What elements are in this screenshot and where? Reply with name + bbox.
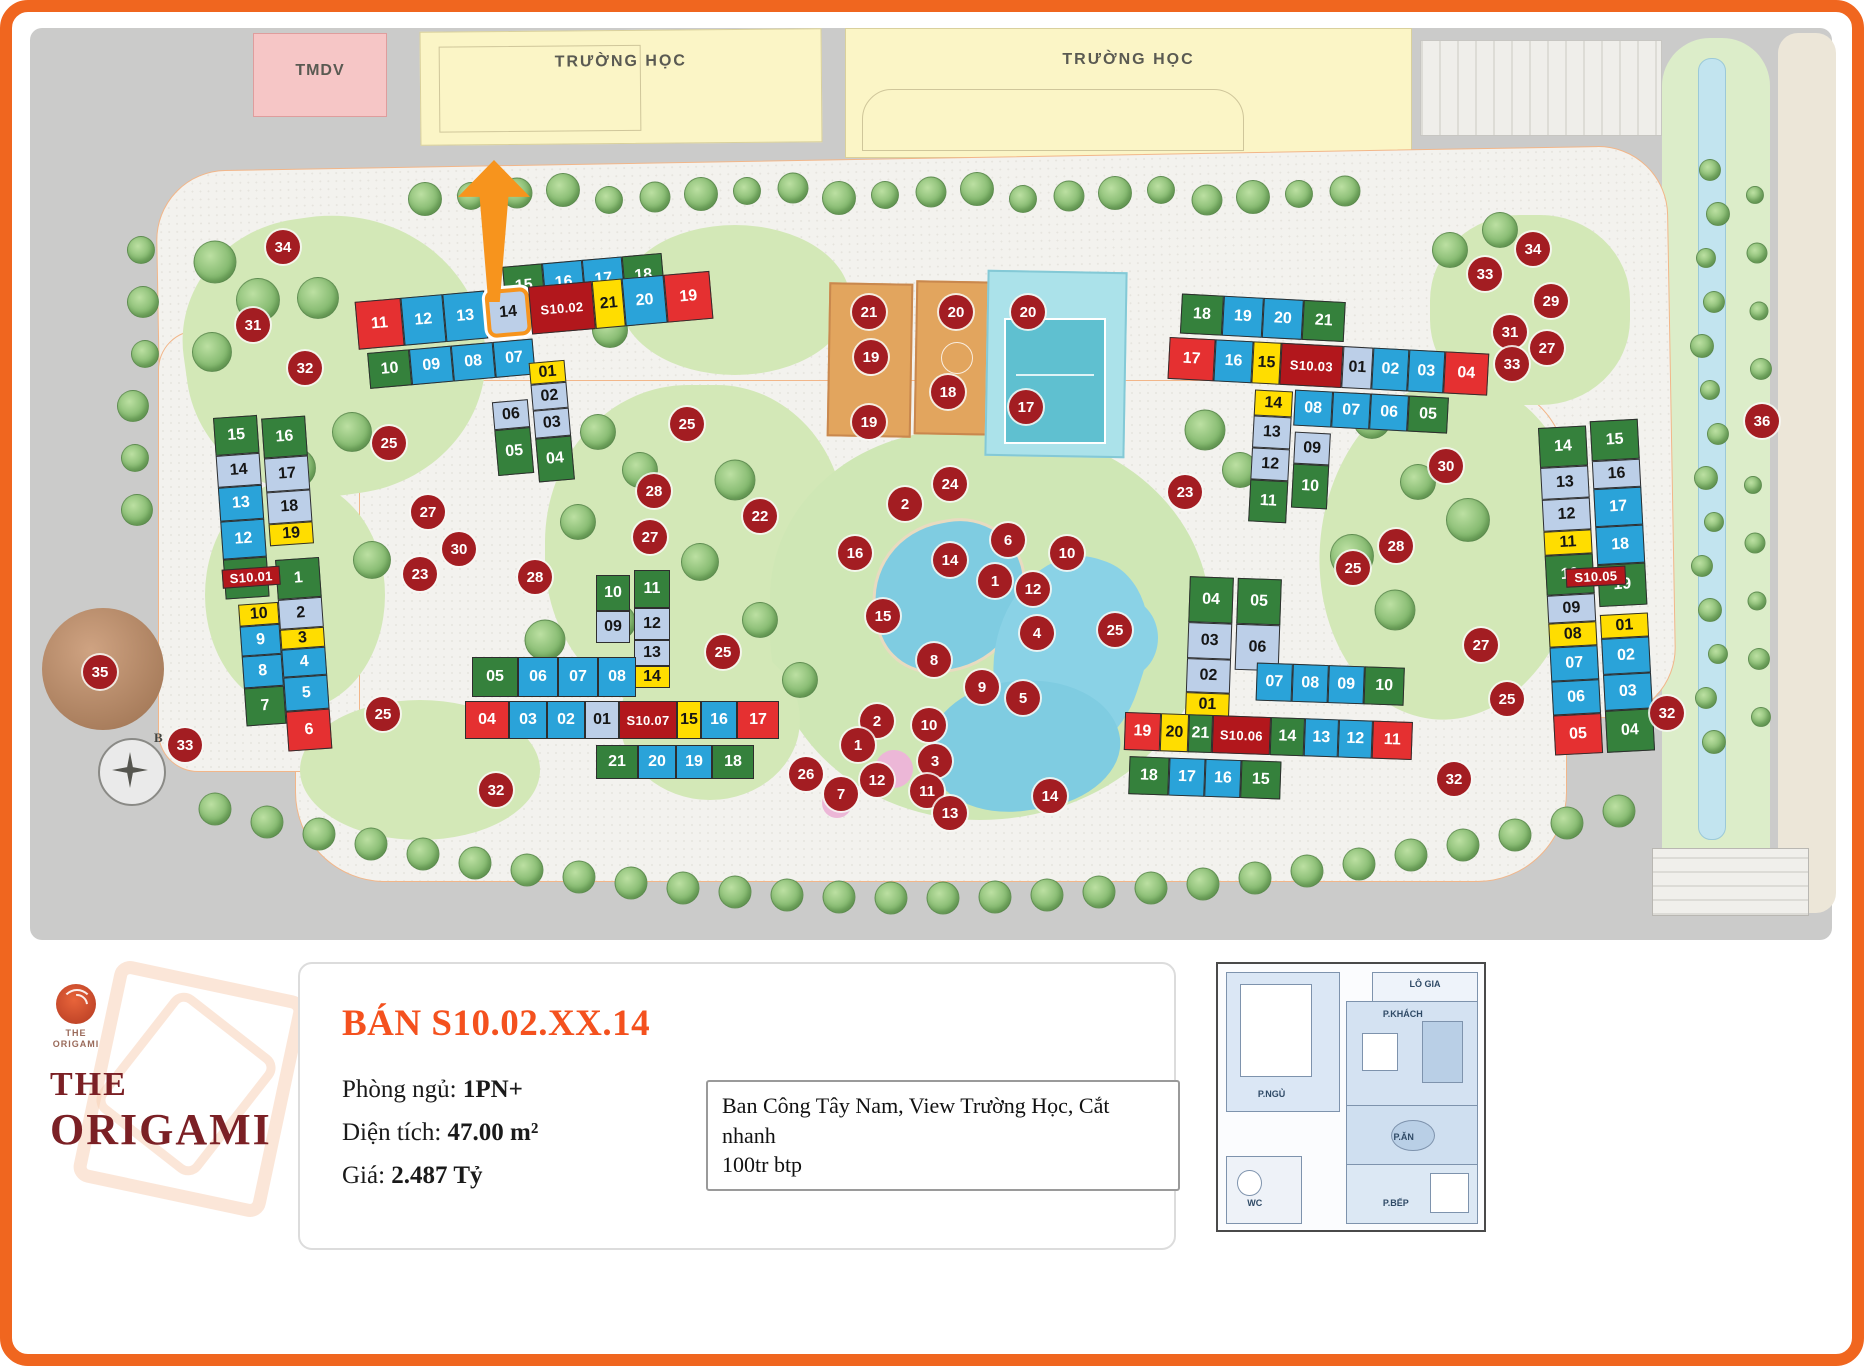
unit-S10.02-05[interactable]: 05: [494, 427, 534, 476]
tree-icon: [1703, 291, 1725, 313]
amenity-marker-26: 26: [789, 757, 823, 791]
note-line-1: Ban Công Tây Nam, View Trường Học, Cắt n…: [722, 1091, 1164, 1150]
amenity-marker-4: 4: [1020, 616, 1054, 650]
unit-S10.07-17[interactable]: 17: [737, 701, 779, 739]
amenity-marker-33: 33: [168, 728, 202, 762]
info-field-0: Phòng ngủ: 1PN+: [342, 1076, 538, 1104]
tree-icon: [332, 412, 372, 452]
amenity-marker-25: 25: [366, 697, 400, 731]
unit-S10.07-04[interactable]: 04: [465, 701, 509, 739]
unit-S10.03-20[interactable]: 20: [1262, 298, 1304, 340]
tree-icon: [1098, 176, 1132, 210]
amenity-marker-33: 33: [1495, 347, 1529, 381]
block-group: 04030201: [1185, 576, 1234, 717]
tree-icon: [1135, 872, 1168, 905]
amenity-marker-30: 30: [1429, 449, 1463, 483]
tree-icon: [960, 172, 994, 206]
tree-icon: [1285, 180, 1313, 208]
tree-icon: [1707, 423, 1729, 445]
tree-icon: [927, 881, 960, 914]
tree-icon: [715, 460, 756, 501]
tree-icon: [1330, 176, 1361, 207]
tree-icon: [782, 662, 818, 698]
tree-icon: [131, 340, 159, 368]
unit-S10.05-03[interactable]: 03: [1603, 672, 1653, 710]
unit-S10.06-03[interactable]: 03: [1187, 622, 1232, 660]
tree-icon: [733, 177, 761, 205]
unit-S10.03-17[interactable]: 17: [1167, 337, 1215, 381]
amenity-marker-6: 6: [991, 523, 1025, 557]
unit-S10.07-21[interactable]: 21: [596, 745, 638, 779]
block-name-label-S10.06: S10.06: [1212, 715, 1271, 755]
brand-logo: THE ORIGAMI THE ORIGAMI: [40, 970, 290, 1270]
block-name-label-S10.07: S10.07: [619, 701, 677, 739]
unit-S10.06-12[interactable]: 12: [1338, 719, 1373, 758]
unit-S10.06-18[interactable]: 18: [1128, 756, 1169, 795]
amenity-marker-32: 32: [479, 773, 513, 807]
amenity-marker-3: 3: [918, 744, 952, 778]
amenity-marker-25: 25: [670, 407, 704, 441]
unit-S10.03-01[interactable]: 01: [1341, 346, 1373, 390]
room-label-kitchen: P.BẾP: [1383, 1198, 1409, 1208]
listing-note: Ban Công Tây Nam, View Trường Học, Cắt n…: [706, 1080, 1180, 1191]
unit-S10.07-19[interactable]: 19: [676, 745, 712, 779]
amenity-marker-18: 18: [931, 375, 965, 409]
tree-icon: [595, 186, 623, 214]
unit-S10.07-01[interactable]: 01: [585, 701, 619, 739]
unit-S10.06-14[interactable]: 14: [1270, 717, 1305, 756]
unit-S10.07-20[interactable]: 20: [638, 745, 676, 779]
amenity-marker-24: 24: [933, 467, 967, 501]
unit-S10.05-18[interactable]: 18: [1595, 525, 1645, 565]
unit-S10.01-4[interactable]: 4: [281, 647, 327, 678]
tree-icon: [719, 875, 752, 908]
block-group: 0506: [1235, 578, 1282, 671]
tree-icon: [1239, 861, 1272, 894]
tree-icon: [1031, 879, 1064, 912]
tennis-court: [1004, 318, 1106, 444]
unit-S10.03-15[interactable]: 15: [1251, 341, 1281, 384]
note-line-2: 100tr btp: [722, 1150, 1164, 1180]
service-building-plan: [1652, 848, 1809, 916]
tree-icon: [1750, 358, 1772, 380]
amenity-marker-13: 13: [933, 796, 967, 830]
unit-S10.05-08[interactable]: 08: [1548, 621, 1597, 647]
amenity-marker-15: 15: [866, 599, 900, 633]
amenity-marker-7: 7: [824, 777, 858, 811]
amenity-marker-14: 14: [933, 543, 967, 577]
amenity-marker-34: 34: [1516, 232, 1550, 266]
unit-S10.05-06[interactable]: 06: [1551, 679, 1601, 715]
school-label-2: TRƯỜNG HỌC: [846, 51, 1411, 69]
unit-S10.01-18[interactable]: 18: [266, 489, 312, 524]
tree-icon: [823, 880, 856, 913]
amenity-marker-1: 1: [978, 564, 1012, 598]
amenity-marker-27: 27: [1464, 628, 1498, 662]
amenity-marker-36: 36: [1745, 404, 1779, 438]
tree-icon: [667, 871, 700, 904]
amenity-marker-28: 28: [1379, 529, 1413, 563]
tree-icon: [192, 332, 232, 372]
unit-S10.05-16[interactable]: 16: [1592, 459, 1641, 489]
unit-S10.03-12[interactable]: 12: [1250, 447, 1290, 481]
amenity-marker-28: 28: [637, 474, 671, 508]
unit-S10.07-12[interactable]: 12: [634, 608, 670, 640]
tree-icon: [1700, 380, 1720, 400]
tree-icon: [1750, 302, 1769, 321]
block-group: 1009: [596, 575, 630, 643]
unit-S10.02-11[interactable]: 11: [355, 298, 405, 350]
unit-S10.03-11[interactable]: 11: [1248, 479, 1288, 523]
amenity-marker-27: 27: [411, 495, 445, 529]
tree-icon: [355, 828, 388, 861]
unit-S10.03-09[interactable]: 09: [1293, 432, 1331, 466]
unit-S10.07-03[interactable]: 03: [509, 701, 547, 739]
amenity-marker-14: 14: [1033, 779, 1067, 813]
tree-icon: [1603, 794, 1636, 827]
unit-S10.03-02[interactable]: 02: [1371, 348, 1409, 392]
tree-icon: [511, 854, 544, 887]
amenity-marker-28: 28: [518, 560, 552, 594]
block-name-label-S10.01: S10.01: [222, 566, 281, 589]
tree-icon: [353, 541, 391, 579]
compass-rose: [98, 738, 166, 806]
tree-icon: [1690, 334, 1714, 358]
unit-S10.06-09[interactable]: 09: [1328, 665, 1365, 704]
tree-icon: [1748, 592, 1767, 611]
unit-S10.01-9[interactable]: 9: [240, 624, 282, 657]
unit-S10.01-19[interactable]: 19: [269, 521, 314, 546]
amenity-marker-30: 30: [442, 532, 476, 566]
tree-icon: [1083, 876, 1116, 909]
unit-S10.06-10[interactable]: 10: [1364, 666, 1405, 705]
amenity-marker-27: 27: [1530, 331, 1564, 365]
brand-title-line2: ORIGAMI: [50, 1104, 272, 1155]
block-group: 18171615: [1128, 756, 1281, 799]
amenity-marker-8: 8: [917, 643, 951, 677]
unit-S10.02-12[interactable]: 12: [400, 294, 446, 345]
unit-S10.01-15[interactable]: 15: [213, 415, 260, 456]
room-label-balcony: LÔ GIA: [1410, 979, 1441, 989]
tree-icon: [871, 181, 899, 209]
unit-S10.03-19[interactable]: 19: [1222, 296, 1264, 338]
amenity-marker-35: 35: [83, 655, 117, 689]
tree-icon: [127, 236, 155, 264]
tree-icon: [1694, 466, 1718, 490]
unit-S10.06-17[interactable]: 17: [1168, 758, 1205, 797]
unit-S10.03-03[interactable]: 03: [1407, 350, 1445, 394]
amenity-marker-10: 10: [1050, 536, 1084, 570]
tree-icon: [742, 602, 778, 638]
unit-S10.07-11[interactable]: 11: [634, 570, 670, 608]
tree-icon: [1343, 847, 1376, 880]
unit-S10.03-10[interactable]: 10: [1291, 464, 1329, 510]
tree-icon: [121, 444, 149, 472]
block-name-label-S10.03: S10.03: [1279, 343, 1343, 388]
tree-icon: [1187, 867, 1220, 900]
listing-fields: Phòng ngủ: 1PN+Diện tích: 47.00 m²Giá: 2…: [342, 1076, 538, 1205]
amenity-marker-31: 31: [1493, 315, 1527, 349]
info-field-2: Giá: 2.487 Tỷ: [342, 1162, 538, 1190]
tree-icon: [251, 805, 284, 838]
unit-S10.07-16[interactable]: 16: [701, 701, 737, 739]
tree-icon: [525, 620, 566, 661]
tree-icon: [1551, 807, 1584, 840]
tree-icon: [1745, 533, 1766, 554]
amenity-marker-27: 27: [633, 520, 667, 554]
unit-S10.06-11[interactable]: 11: [1372, 721, 1413, 760]
block-group: 16171819: [261, 416, 314, 547]
brand-small-text: THE ORIGAMI: [44, 1028, 108, 1051]
tree-icon: [1699, 159, 1721, 181]
unit-S10.06-15[interactable]: 15: [1240, 760, 1281, 799]
unit-S10.06-07[interactable]: 07: [1256, 663, 1293, 702]
block-group: 01020304: [1600, 613, 1655, 753]
tree-icon: [580, 414, 616, 450]
unit-S10.01-5[interactable]: 5: [283, 675, 329, 712]
unit-S10.07-15[interactable]: 15: [677, 701, 701, 739]
unit-S10.01-6[interactable]: 6: [286, 709, 333, 752]
tree-icon: [1447, 829, 1480, 862]
unit-S10.05-04[interactable]: 04: [1605, 708, 1655, 752]
tree-icon: [822, 181, 856, 215]
unit-S10.05-17[interactable]: 17: [1593, 487, 1643, 527]
amenity-marker-34: 34: [266, 230, 300, 264]
unit-S10.01-1[interactable]: 1: [275, 557, 322, 600]
tree-icon: [1747, 243, 1768, 264]
tree-icon: [121, 494, 153, 526]
school-building-outline: [862, 89, 1244, 151]
unit-S10.06-04[interactable]: 04: [1188, 576, 1234, 624]
tree-icon: [303, 817, 336, 850]
tree-icon: [563, 861, 596, 894]
unit-S10.05-12[interactable]: 12: [1542, 497, 1592, 531]
amenity-marker-22: 22: [743, 499, 777, 533]
unit-S10.07-07[interactable]: 07: [558, 657, 598, 697]
brand-mark-icon: [56, 984, 96, 1024]
room-kitchen: [1346, 1164, 1478, 1225]
unit-S10.05-01[interactable]: 01: [1600, 613, 1649, 639]
unit-S10.03-06[interactable]: 06: [1369, 394, 1409, 432]
compass-star: [112, 752, 148, 788]
unit-S10.02-08[interactable]: 08: [451, 342, 496, 382]
room-label-dining: P.ĂN: [1394, 1132, 1414, 1142]
listing-title: BÁN S10.02.XX.14: [342, 1002, 650, 1045]
unit-S10.02-03[interactable]: 03: [533, 408, 571, 439]
block-name-label-S10.05: S10.05: [1565, 566, 1626, 588]
tree-icon: [297, 277, 339, 319]
amenity-marker-25: 25: [372, 426, 406, 460]
tree-icon: [459, 846, 492, 879]
room-label-wc: WC: [1247, 1198, 1262, 1208]
tree-icon: [1185, 410, 1226, 451]
tree-icon: [1499, 818, 1532, 851]
block-group: 0910: [1291, 432, 1331, 510]
tree-icon: [560, 504, 596, 540]
tree-icon: [1236, 180, 1270, 214]
listing-info-panel: THE ORIGAMI THE ORIGAMI BÁN S10.02.XX.14…: [0, 950, 1864, 1366]
unit-S10.06-05[interactable]: 05: [1236, 578, 1282, 626]
amenity-marker-21: 21: [852, 295, 886, 329]
amenity-marker-9: 9: [965, 670, 999, 704]
tree-icon: [1395, 839, 1428, 872]
amenity-marker-5: 5: [1006, 681, 1040, 715]
compass-north-label: B: [154, 730, 163, 746]
unit-S10.05-09[interactable]: 09: [1547, 593, 1596, 623]
unit-S10.03-13[interactable]: 13: [1252, 415, 1292, 449]
block-group: 07080910: [1256, 663, 1405, 706]
amenity-marker-1: 1: [841, 728, 875, 762]
amenity-marker-29: 29: [1534, 284, 1568, 318]
unit-S10.06-16[interactable]: 16: [1204, 759, 1241, 798]
tree-icon: [546, 173, 580, 207]
parking-area-top-right: [1420, 40, 1662, 136]
unit-S10.01-10[interactable]: 10: [238, 602, 279, 627]
tree-icon: [408, 182, 442, 216]
school-area-1: TRƯỜNG HỌC: [420, 28, 823, 146]
block-group: 18192021: [1180, 294, 1346, 343]
unit-S10.03-07[interactable]: 07: [1331, 392, 1371, 430]
amenity-marker-2: 2: [888, 487, 922, 521]
tree-icon: [979, 880, 1012, 913]
tree-icon: [1746, 186, 1764, 204]
unit-S10.01-12[interactable]: 12: [220, 519, 267, 560]
unit-S10.05-15[interactable]: 15: [1590, 419, 1640, 461]
unit-S10.06-02[interactable]: 02: [1186, 658, 1231, 694]
unit-S10.01-2[interactable]: 2: [278, 597, 324, 630]
unit-S10.06-20[interactable]: 20: [1160, 713, 1189, 752]
brand-title-line1: THE: [50, 1066, 128, 1104]
tree-icon: [1698, 598, 1722, 622]
unit-S10.03-14[interactable]: 14: [1254, 389, 1293, 417]
unit-S10.07-14[interactable]: 14: [634, 666, 670, 688]
amenity-marker-32: 32: [288, 351, 322, 385]
unit-S10.02-04[interactable]: 04: [535, 436, 575, 483]
unit-S10.02-10[interactable]: 10: [367, 349, 412, 389]
amenity-marker-23: 23: [403, 557, 437, 591]
unit-S10.01-14[interactable]: 14: [216, 453, 262, 488]
amenity-marker-20: 20: [1011, 295, 1045, 329]
tree-icon: [199, 793, 232, 826]
unit-S10.05-05[interactable]: 05: [1553, 713, 1603, 755]
tree-icon: [771, 878, 804, 911]
unit-S10.02-09[interactable]: 09: [409, 346, 454, 386]
amenity-marker-10: 10: [912, 708, 946, 742]
info-field-1: Diện tích: 47.00 m²: [342, 1119, 538, 1147]
tree-icon: [127, 286, 159, 318]
tmdv-area: TMDV: [253, 33, 387, 117]
tree-icon: [1147, 176, 1175, 204]
unit-S10.03-04[interactable]: 04: [1443, 351, 1489, 395]
unit-S10.07-18[interactable]: 18: [712, 745, 754, 779]
unit-S10.07-10[interactable]: 10: [596, 575, 630, 611]
unit-S10.05-11[interactable]: 11: [1543, 529, 1592, 555]
unit-S10.03-08[interactable]: 08: [1293, 390, 1333, 428]
unit-S10.01-16[interactable]: 16: [261, 416, 308, 459]
site-plan-map: TRƯỜNG HỌC TRƯỜNG HỌC TMDV: [0, 0, 1864, 960]
unit-S10.01-8[interactable]: 8: [242, 654, 284, 689]
tmdv-label: TMDV: [254, 62, 386, 80]
tree-icon: [1375, 590, 1416, 631]
unit-S10.07-08[interactable]: 08: [598, 657, 636, 697]
tree-icon: [1696, 248, 1716, 268]
tree-icon: [1691, 555, 1713, 577]
unit-S10.05-07[interactable]: 07: [1550, 645, 1600, 681]
tree-icon: [916, 177, 947, 208]
block-group: 11121314: [634, 570, 670, 688]
unit-S10.02-19[interactable]: 19: [663, 271, 713, 323]
road-far-right: [1778, 33, 1836, 913]
amenity-marker-12: 12: [860, 763, 894, 797]
tree-icon: [1708, 644, 1728, 664]
tree-icon: [1482, 212, 1518, 248]
room-label-bedroom: P.NGỦ: [1258, 1089, 1285, 1099]
tree-icon: [875, 881, 908, 914]
tree-icon: [1751, 707, 1771, 727]
unit-S10.01-7[interactable]: 7: [244, 686, 287, 727]
amenity-marker-17: 17: [1009, 390, 1043, 424]
amenity-marker-25: 25: [1098, 613, 1132, 647]
tree-icon: [684, 177, 718, 211]
unit-S10.05-02[interactable]: 02: [1601, 636, 1651, 674]
unit-S10.07-05[interactable]: 05: [472, 657, 518, 697]
amenity-marker-23: 23: [1168, 475, 1202, 509]
unit-S10.06-19[interactable]: 19: [1124, 712, 1161, 751]
unit-S10.06-08[interactable]: 08: [1292, 664, 1329, 703]
unit-S10.07-13[interactable]: 13: [634, 640, 670, 666]
unit-S10.02-02[interactable]: 02: [531, 382, 569, 411]
tree-icon: [778, 173, 809, 204]
block-name-label-S10.02: S10.02: [528, 281, 596, 334]
tree-icon: [407, 837, 440, 870]
unit-S10.06-13[interactable]: 13: [1304, 718, 1339, 757]
unit-S10.06-21[interactable]: 21: [1188, 714, 1213, 753]
amenity-marker-31: 31: [236, 308, 270, 342]
unit-S10.07-06[interactable]: 06: [518, 657, 558, 697]
unit-S10.02-21[interactable]: 21: [592, 279, 626, 329]
tree-icon: [1446, 498, 1490, 542]
amenity-marker-16: 16: [838, 536, 872, 570]
tree-icon: [1744, 476, 1762, 494]
room-wc: [1226, 1156, 1302, 1225]
room-label-living: P.KHÁCH: [1383, 1009, 1423, 1019]
unit-S10.03-16[interactable]: 16: [1213, 339, 1253, 383]
unit-S10.05-14[interactable]: 14: [1538, 425, 1588, 467]
tree-icon: [1291, 855, 1324, 888]
unit-S10.07-09[interactable]: 09: [596, 611, 630, 643]
tree-icon: [1432, 232, 1468, 268]
unit-S10.02-20[interactable]: 20: [622, 275, 668, 326]
unit-S10.02-13[interactable]: 13: [442, 291, 488, 342]
tree-icon: [1695, 687, 1717, 709]
unit-S10.07-02[interactable]: 02: [547, 701, 585, 739]
amenity-marker-33: 33: [1468, 257, 1502, 291]
unit-S10.05-13[interactable]: 13: [1540, 465, 1590, 499]
unit-S10.03-18[interactable]: 18: [1180, 294, 1224, 336]
unit-S10.03-21[interactable]: 21: [1302, 300, 1346, 342]
unit-S10.01-13[interactable]: 13: [218, 485, 264, 522]
unit-S10.03-05[interactable]: 05: [1407, 396, 1449, 434]
tree-icon: [1054, 181, 1085, 212]
tree-icon: [1704, 512, 1724, 532]
amenity-marker-25: 25: [1490, 682, 1524, 716]
unit-S10.01-17[interactable]: 17: [264, 455, 310, 492]
screenshot-stage: TRƯỜNG HỌC TRƯỜNG HỌC TMDV: [0, 0, 1864, 1366]
tree-icon: [1706, 202, 1730, 226]
unit-S10.02-01[interactable]: 01: [529, 360, 567, 385]
unit-S10.02-06[interactable]: 06: [492, 399, 530, 430]
block-group: 0605: [492, 399, 534, 476]
